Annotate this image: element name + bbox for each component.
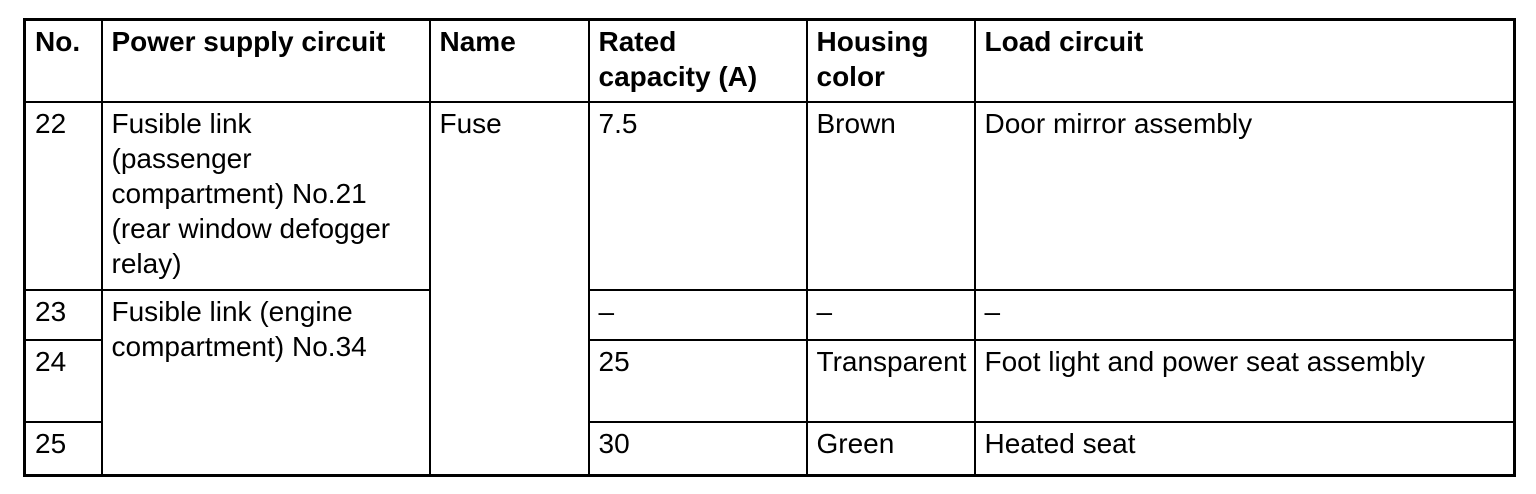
- header-no: No.: [25, 20, 102, 102]
- header-power-supply-circuit: Power supply circuit: [102, 20, 430, 102]
- cell-load-circuit-22: Door mirror assembly: [975, 102, 1515, 290]
- cell-housing-color-22: Brown: [807, 102, 975, 290]
- table-row-22: 22 Fusible link (passenger compartment) …: [25, 102, 1515, 290]
- document-page: No. Power supply circuit Name Rated capa…: [0, 0, 1536, 494]
- cell-no-22: 22: [25, 102, 102, 290]
- header-load-circuit: Load circuit: [975, 20, 1515, 102]
- cell-load-circuit-25: Heated seat: [975, 422, 1515, 476]
- cell-rated-capacity-23: –: [589, 290, 807, 340]
- table-header-row: No. Power supply circuit Name Rated capa…: [25, 20, 1515, 102]
- cell-power-supply-circuit-22: Fusible link (passenger compartment) No.…: [102, 102, 430, 290]
- cell-rated-capacity-25: 30: [589, 422, 807, 476]
- cell-load-circuit-23: –: [975, 290, 1515, 340]
- header-name: Name: [430, 20, 589, 102]
- cell-no-24: 24: [25, 340, 102, 422]
- cell-housing-color-24: Transparent: [807, 340, 975, 422]
- cell-no-23: 23: [25, 290, 102, 340]
- cell-housing-color-25: Green: [807, 422, 975, 476]
- header-rated-capacity: Rated capacity (A): [589, 20, 807, 102]
- cell-load-circuit-24: Foot light and power seat assembly: [975, 340, 1515, 422]
- cell-rated-capacity-24: 25: [589, 340, 807, 422]
- cell-rated-capacity-22: 7.5: [589, 102, 807, 290]
- cell-name-fuse: Fuse: [430, 102, 589, 476]
- cell-no-25: 25: [25, 422, 102, 476]
- cell-power-supply-circuit-23-25: Fusible link (engine compartment) No.34: [102, 290, 430, 476]
- fuse-specification-table: No. Power supply circuit Name Rated capa…: [23, 18, 1516, 477]
- header-housing-color: Housing color: [807, 20, 975, 102]
- table-row-23: 23 Fusible link (engine compartment) No.…: [25, 290, 1515, 340]
- cell-housing-color-23: –: [807, 290, 975, 340]
